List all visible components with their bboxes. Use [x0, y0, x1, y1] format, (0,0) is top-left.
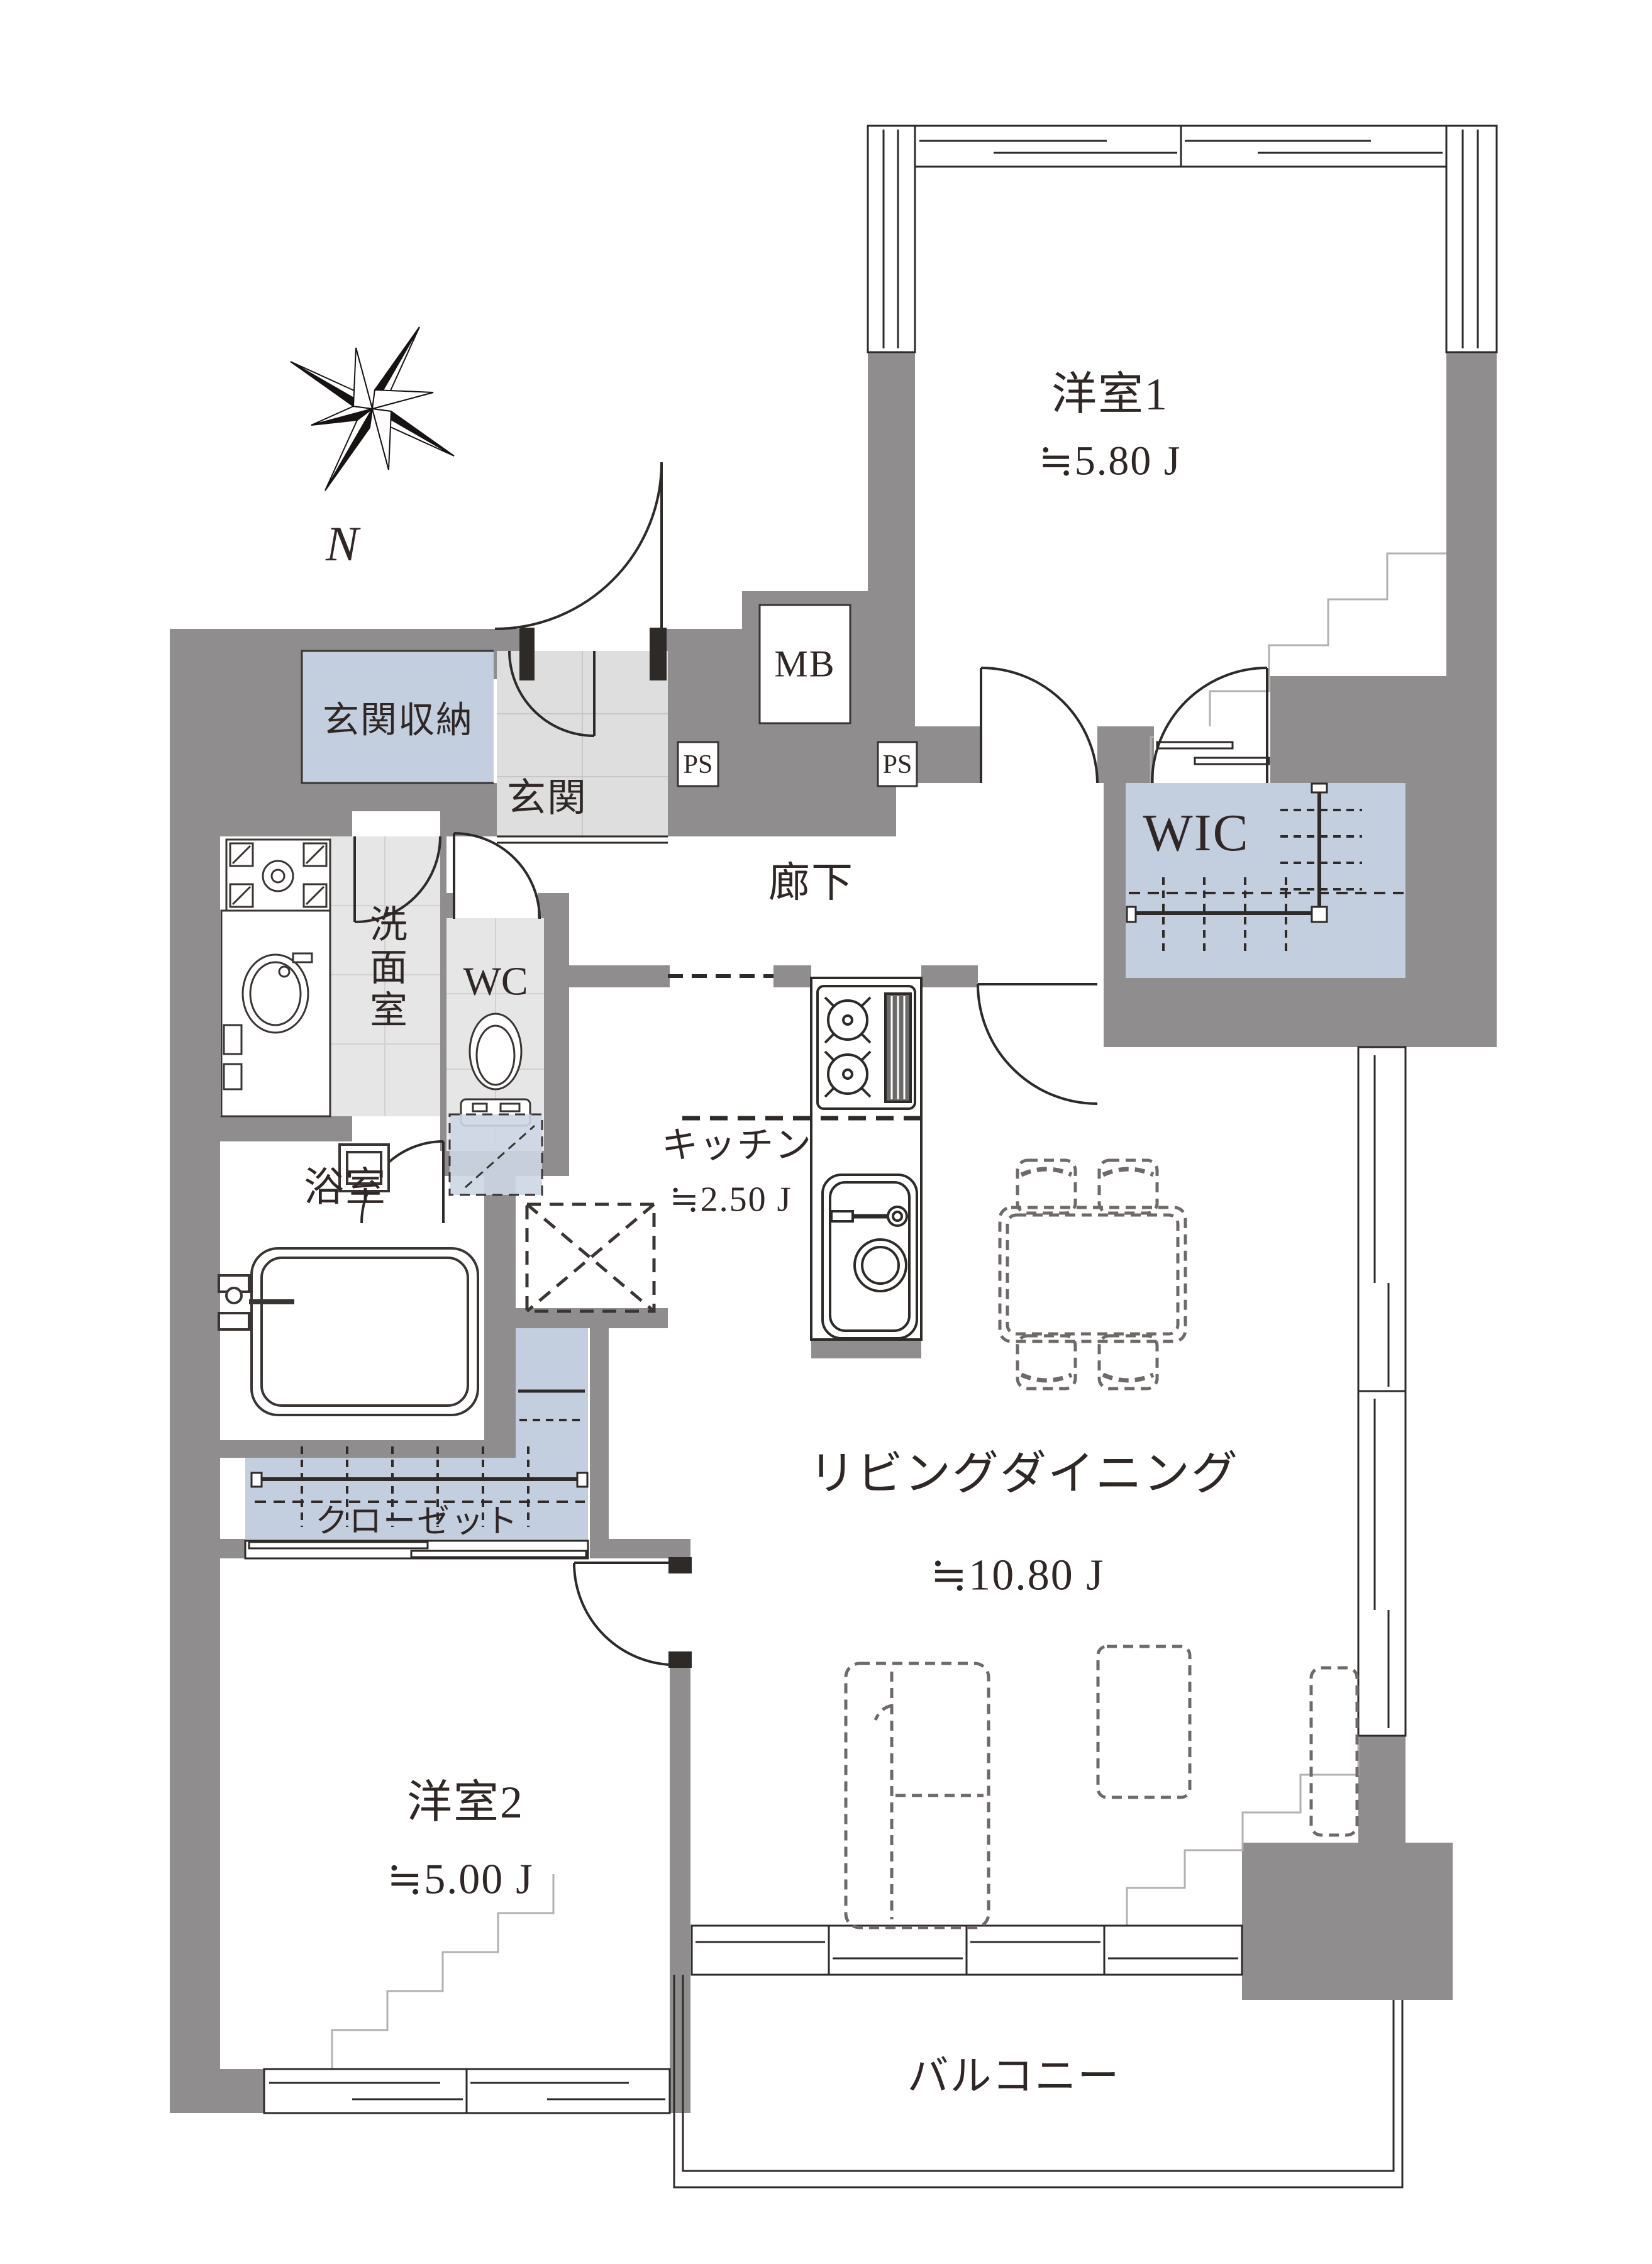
- door-swing-icon: [981, 668, 1097, 783]
- window-pillar: [868, 126, 915, 352]
- wall: [302, 783, 497, 811]
- room-label-closet: クローゼット: [315, 1506, 519, 1540]
- kitchen-counter: [811, 978, 921, 1340]
- wall: [220, 1539, 245, 1558]
- laundry-pan-icon: [226, 840, 330, 911]
- wall-wic-right: [1405, 783, 1497, 978]
- door-swing-icon: [978, 984, 1097, 1104]
- floor-plan: 洋室1 ≒5.80 J N 玄関収納 玄関 MB PS PS WIC 廊下 洗面…: [0, 0, 1652, 2264]
- wall-western2-right: [670, 1667, 690, 2113]
- window-pillar: [1446, 126, 1497, 352]
- room-area-western2: ≒5.00 J: [387, 1856, 533, 1901]
- room-area-kitchen: ≒2.50 J: [670, 1182, 792, 1219]
- wall: [220, 2069, 264, 2113]
- room-label-entrance-storage: 玄関収納: [323, 702, 474, 740]
- door-swing-icon: [454, 833, 540, 919]
- room-label-wic: WIC: [1143, 806, 1249, 861]
- wall-ld-corner: [1242, 1843, 1453, 2000]
- vanity-basin-icon: [221, 911, 330, 1116]
- refrigerator-space-icon: [527, 1204, 654, 1311]
- room-label-bathroom: 浴室: [304, 1166, 387, 1208]
- wall: [443, 893, 454, 918]
- wall: [773, 965, 811, 987]
- room-label-western1: 洋室1: [1051, 371, 1168, 419]
- room-label-washroom: 洗面室: [365, 904, 405, 1033]
- room-label-entrance: 玄関: [507, 778, 587, 819]
- wall: [1270, 676, 1446, 783]
- room-label-ps-left: PS: [684, 751, 713, 779]
- room-area-western1: ≒5.80 J: [1039, 439, 1182, 482]
- wall: [590, 1328, 609, 1539]
- dining-set-icon: [1000, 1160, 1185, 1389]
- wall-wc-right: [544, 893, 569, 1176]
- wall-ld-top: [1104, 978, 1497, 1047]
- door-swing-icon: [574, 1558, 690, 1667]
- compass-rose-icon: [291, 327, 454, 491]
- room-label-kitchen: キッチン: [662, 1127, 812, 1165]
- wall-ld-corner: [1358, 1736, 1405, 1843]
- wall: [1097, 726, 1154, 783]
- wall-bath-top: [220, 1116, 352, 1141]
- door-swing-icon: [495, 462, 665, 679]
- wall: [665, 629, 742, 679]
- wall: [921, 965, 978, 987]
- room-label-balcony: バルコニー: [907, 2055, 1121, 2098]
- wall-washroom-top: [220, 811, 352, 836]
- room-label-wc: WC: [463, 960, 528, 1002]
- coffee-table-icon: [1098, 1646, 1190, 1797]
- room-area-living-dining: ≒10.80 J: [931, 1552, 1105, 1599]
- compass-north-label: N: [326, 518, 360, 570]
- wall: [440, 811, 446, 1151]
- wall-kitchen-bottom: [811, 1340, 921, 1358]
- wall-bath-bottom: [220, 1440, 484, 1458]
- wall-wic-left: [1104, 783, 1126, 978]
- wall: [484, 1308, 668, 1328]
- wall: [590, 1539, 690, 1558]
- wc-counter: [450, 1114, 542, 1195]
- stove-icon: [818, 986, 915, 1109]
- wall-outer-left: [170, 679, 220, 2113]
- room-label-ps-right: PS: [883, 751, 912, 779]
- room-label-meter-box: MB: [774, 645, 835, 684]
- floor-plan-drawing: [0, 0, 1652, 2264]
- kitchen-sink-icon: [823, 1175, 917, 1338]
- wic-opening: [1154, 726, 1270, 783]
- tv-board-icon: [1311, 1668, 1357, 1835]
- room-label-western2: 洋室2: [407, 1779, 524, 1827]
- entrance-step-edge: [497, 836, 668, 843]
- wall-western1-left: [868, 352, 915, 783]
- sofa-icon: [846, 1663, 989, 1928]
- room-label-living-dining: リビングダイニング: [809, 1450, 1239, 1499]
- room-label-hallway: 廊下: [768, 861, 854, 904]
